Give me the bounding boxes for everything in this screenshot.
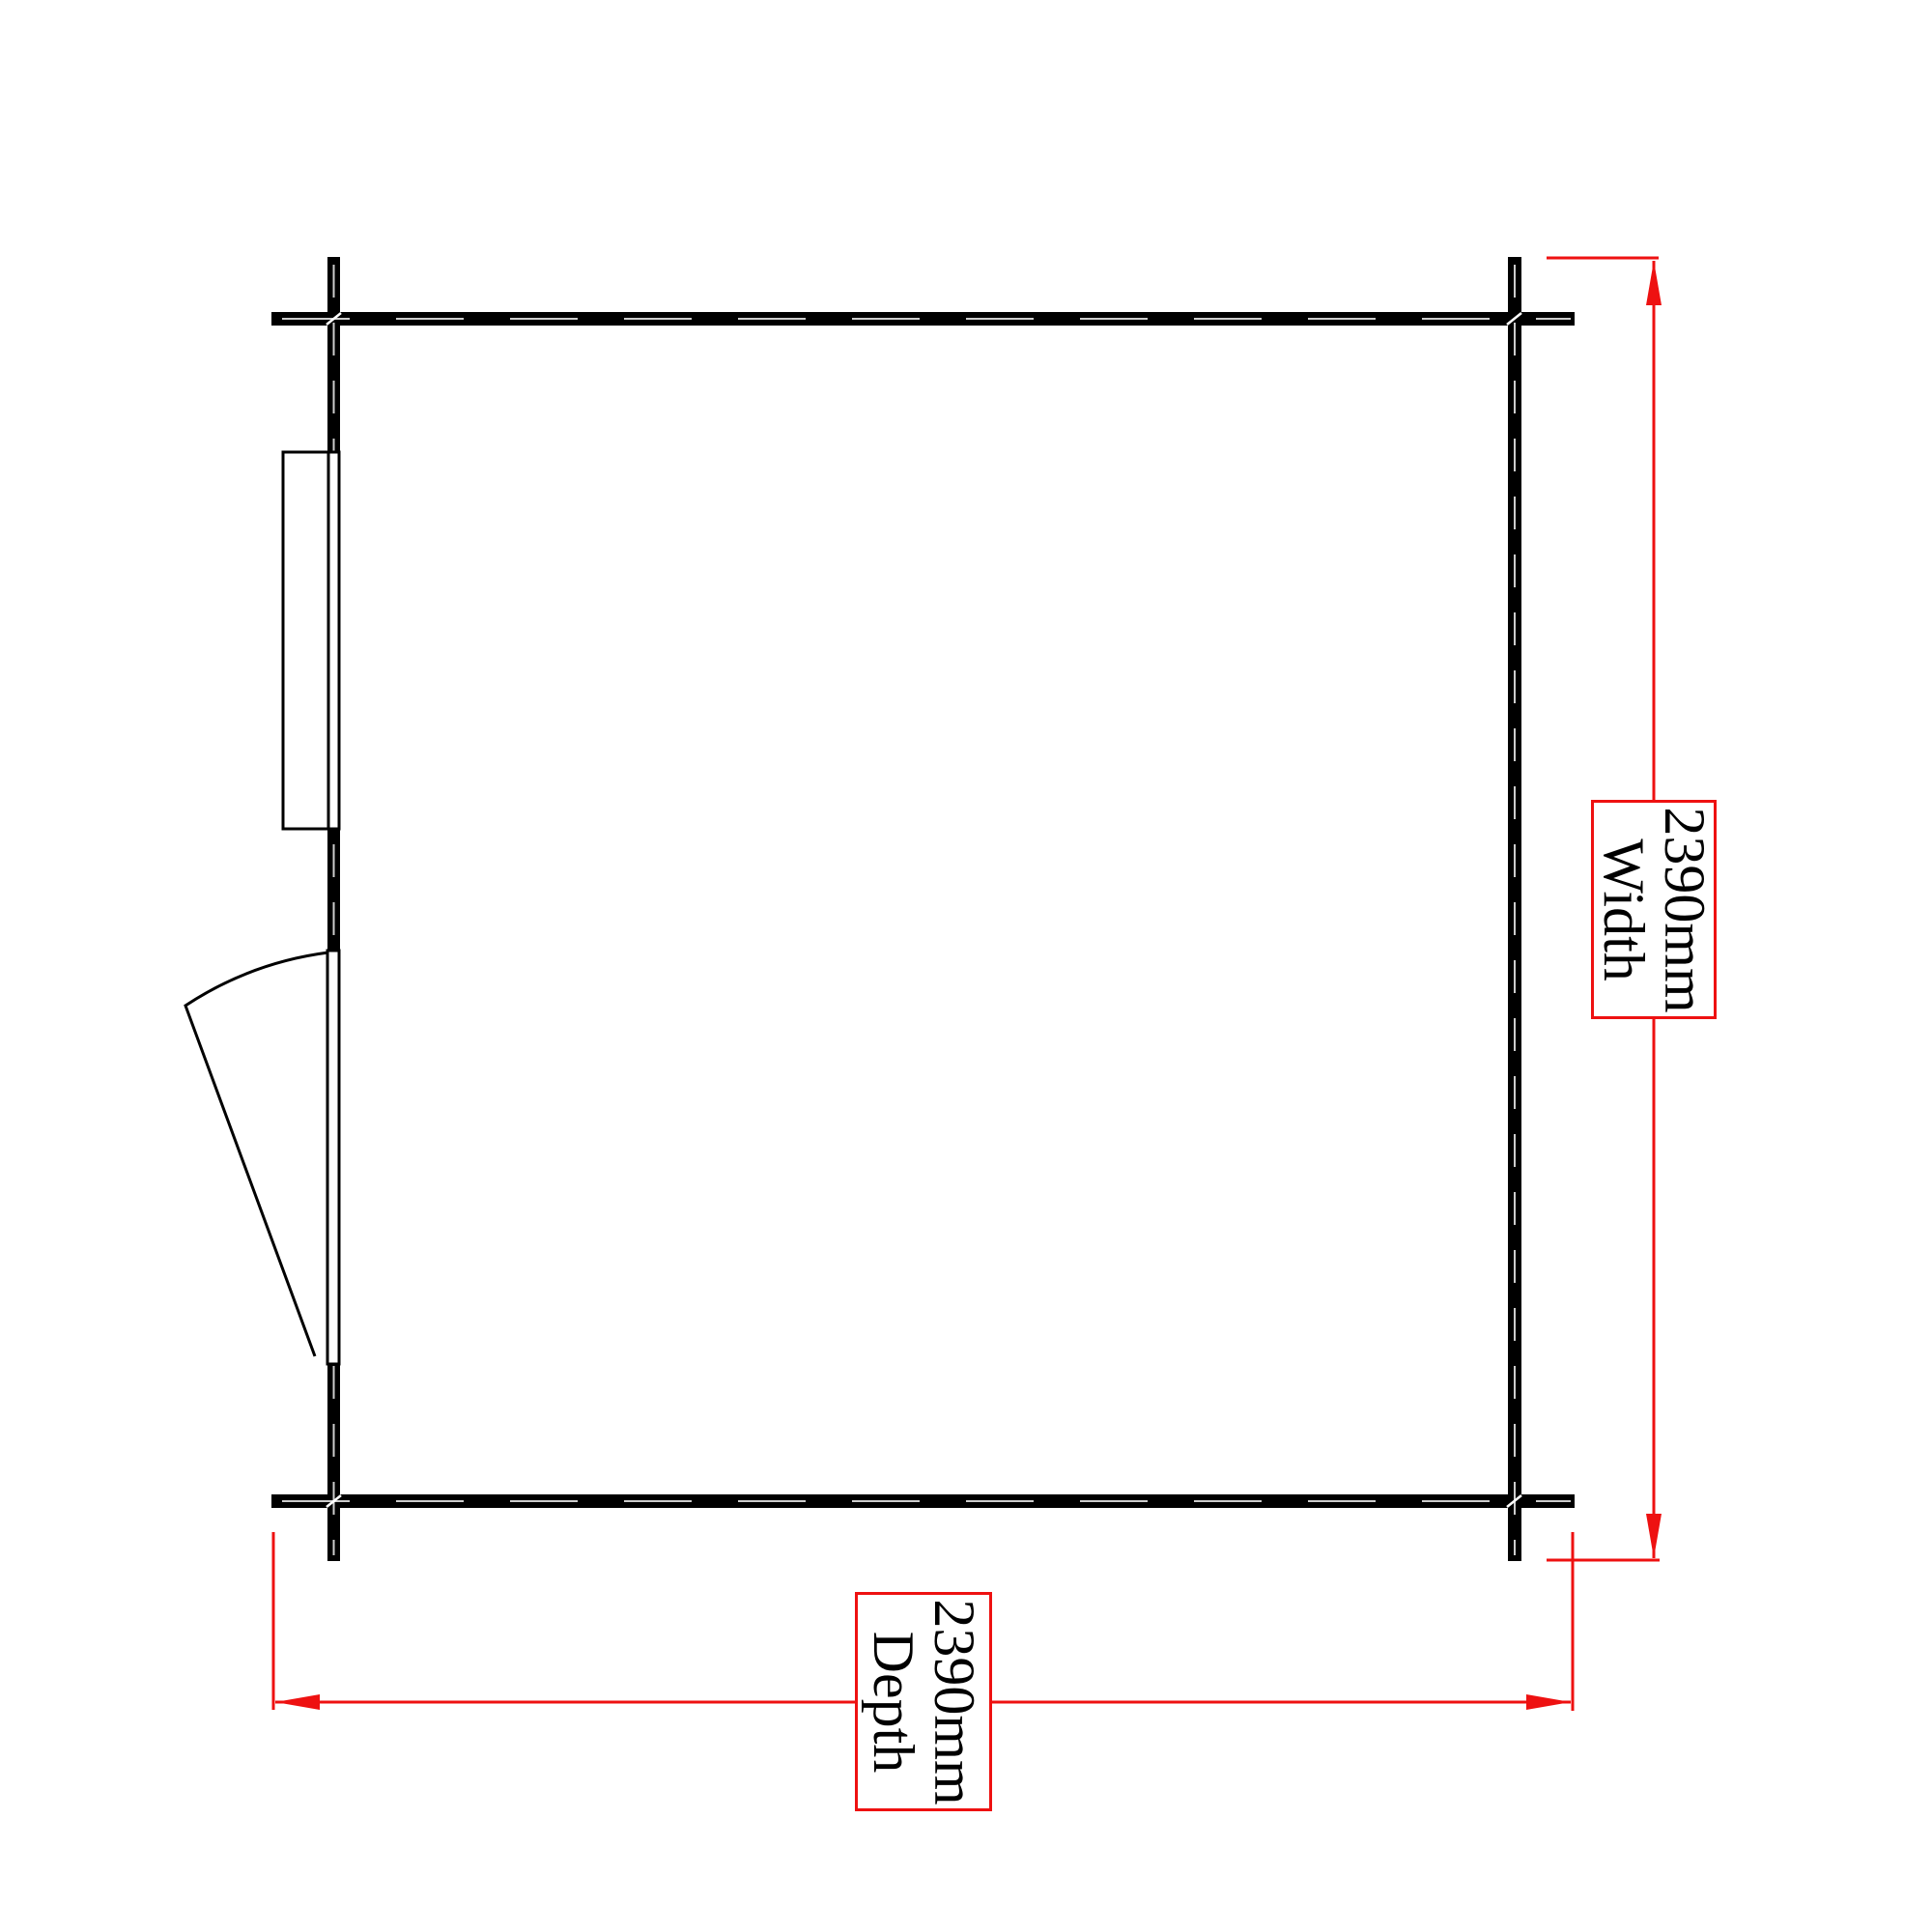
width-arrowhead-top [1646,261,1662,305]
door-swing-arc [185,952,328,1356]
depth-dimension-text: 2390mm Depth [863,1599,984,1804]
wall-bottom [271,1494,1575,1508]
width-dimension-value: 2390mm [1654,807,1715,1012]
width-arrowhead-bottom [1646,1514,1662,1558]
depth-arrowhead-left [275,1694,320,1710]
width-dimension-label: Width [1593,807,1654,1012]
depth-arrowhead-right [1526,1694,1571,1710]
depth-dimension-label-box: 2390mm Depth [855,1592,992,1811]
window-frame [283,452,339,829]
door-frame [327,951,339,1364]
floor-plan-canvas: 2390mm Width 2390mm Depth [0,0,1932,1932]
width-dimension-label-box: 2390mm Width [1591,800,1717,1019]
width-dimension-text: 2390mm Width [1593,807,1715,1012]
depth-dimension-label: Depth [863,1599,923,1804]
wall-top [271,312,1575,326]
depth-dimension-value: 2390mm [923,1599,984,1804]
